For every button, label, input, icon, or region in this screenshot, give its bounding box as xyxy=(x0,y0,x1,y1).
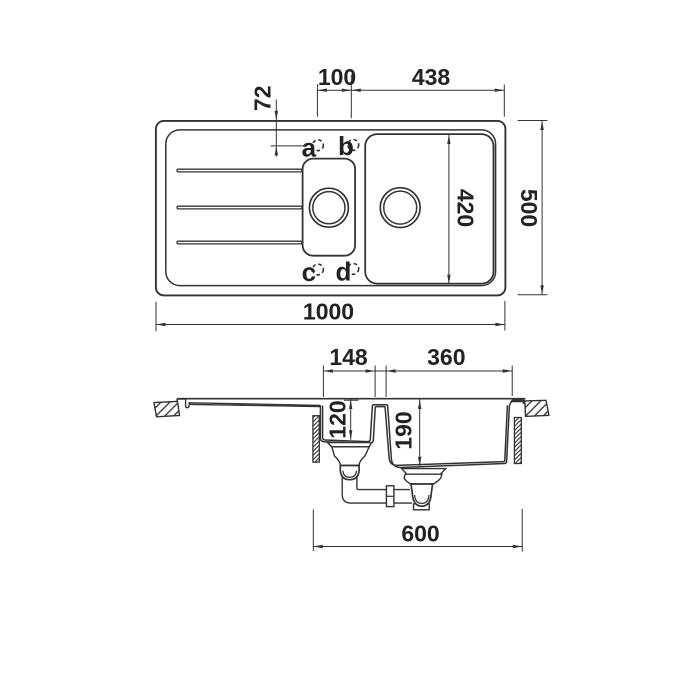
svg-text:1000: 1000 xyxy=(303,299,354,325)
svg-text:b: b xyxy=(338,131,354,161)
svg-text:c: c xyxy=(302,257,316,287)
svg-text:500: 500 xyxy=(516,189,542,227)
svg-text:420: 420 xyxy=(452,189,478,227)
svg-text:a: a xyxy=(302,133,317,163)
svg-text:190: 190 xyxy=(391,411,417,449)
svg-text:360: 360 xyxy=(427,344,465,370)
svg-text:120: 120 xyxy=(325,400,351,438)
svg-text:148: 148 xyxy=(329,344,368,370)
svg-text:438: 438 xyxy=(412,64,451,90)
svg-text:600: 600 xyxy=(401,521,439,547)
svg-text:100: 100 xyxy=(318,64,356,90)
svg-text:d: d xyxy=(336,257,352,287)
svg-text:72: 72 xyxy=(250,86,276,112)
